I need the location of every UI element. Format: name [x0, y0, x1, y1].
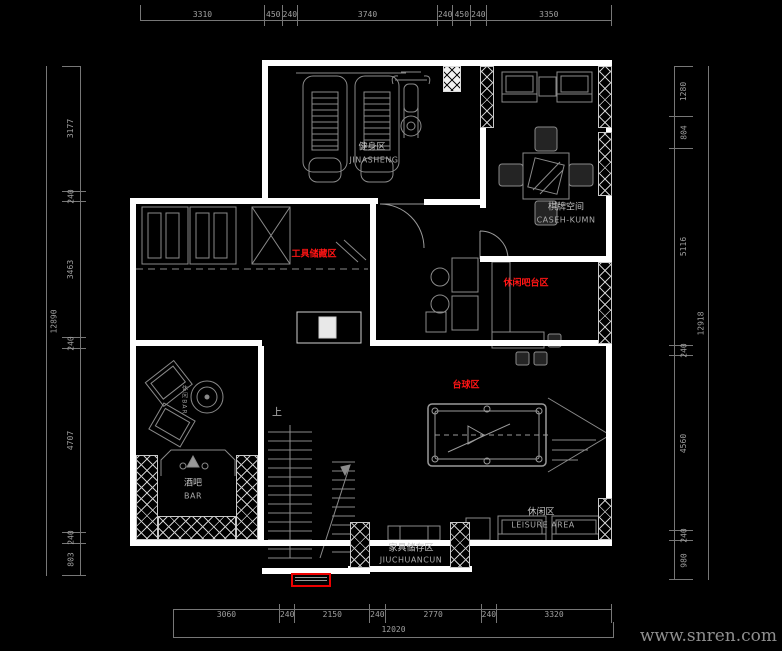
entry-marker [291, 573, 331, 587]
dim-value: 450 [455, 10, 469, 20]
floor-plan-canvas: 3310 450 240 3740 240 450 240 3350 3060 … [0, 0, 782, 651]
dim-value: 4560 [680, 433, 689, 452]
hatch-column [598, 66, 612, 128]
dim-value: 240 [283, 10, 297, 20]
dim-value: 3350 [539, 10, 558, 20]
door-arc [380, 204, 508, 259]
dim-value: 4707 [67, 431, 76, 450]
desk-and-chairs [426, 258, 478, 332]
dim-value: 1280 [680, 82, 689, 101]
dim-value: 240 [482, 610, 496, 620]
hatch-column [598, 262, 612, 344]
hatch-column [598, 498, 612, 540]
dim-value: 803 [66, 552, 75, 566]
room-label-bar-en: BAR [184, 492, 202, 501]
watermark: www.snren.com [640, 626, 777, 646]
bar-cabinet-icon [161, 450, 235, 476]
dim-bottom: 3060 240 2150 240 2770 240 3320 [173, 609, 612, 623]
counter-block [297, 312, 361, 343]
dim-value: 240 [280, 610, 294, 620]
wardrobe-icons [142, 207, 290, 264]
dim-value: 5116 [680, 237, 689, 256]
dim-left: 3177 240 3463 240 4707 240 803 [62, 66, 81, 576]
hatch-column [450, 522, 470, 568]
dim-value: 980 [679, 553, 688, 567]
room-label-storage-en: JIUCHUANCUN [380, 556, 442, 565]
wall-garage-left [262, 60, 268, 204]
dim-value: 3310 [193, 10, 212, 20]
dim-value: 3060 [217, 610, 236, 620]
room-label-chess-en: CASEH-KUMN [537, 216, 596, 225]
dim-value: 450 [266, 10, 280, 20]
hatch-column [236, 455, 258, 540]
room-label-storage-zh: 家具储存区 [388, 541, 433, 554]
dim-value: 3463 [67, 260, 76, 279]
room-label-billiards: 台球区 [452, 378, 479, 391]
room-label-fitness-en: JINASHENG [349, 156, 398, 165]
storage-table-icon [388, 526, 440, 540]
dim-value: 804 [679, 125, 688, 139]
room-label-leisure-en: LEISURE AREA [511, 521, 575, 530]
room-label-fitness-zh: 健身区 [358, 140, 385, 153]
dim-total-value: 12890 [50, 309, 59, 333]
room-label-tool-storage: 工具储藏区 [291, 247, 336, 260]
wall-billiard-top-a [130, 340, 262, 346]
direction-arrow-icon [548, 398, 610, 472]
dim-value: 240 [370, 610, 384, 620]
hatch-column [480, 66, 494, 128]
dim-value: 3177 [67, 119, 76, 138]
hatch-column [350, 522, 370, 568]
room-label-bar-counter: 休闲吧台区 [503, 276, 548, 289]
dim-left-total: 12890 [46, 66, 61, 576]
sofa-icon [502, 72, 592, 102]
dim-top: 3310 450 240 3740 240 450 240 3350 [140, 5, 612, 21]
wall-bottom [130, 540, 612, 546]
staircase-icon [268, 425, 355, 558]
dim-total-value: 12918 [697, 311, 706, 335]
room-label-chess-zh: 棋牌空间 [548, 200, 584, 213]
hatch-column [136, 455, 158, 540]
room-label-bar-zh: 酒吧 [184, 476, 202, 489]
treadmill-icon [296, 73, 354, 182]
dim-value: 240 [438, 10, 452, 20]
dim-total-value: 12020 [381, 625, 405, 634]
wall-mid-horizontal-a [130, 198, 378, 204]
hatch-column [158, 516, 236, 540]
room-label-leisure-zh: 休闲区 [527, 505, 554, 518]
dim-bottom-total: 12020 [173, 622, 614, 638]
stairs-up-label: 上 [272, 404, 282, 419]
wall-top [262, 60, 612, 66]
dim-value: 240 [471, 10, 485, 20]
dim-value: 3320 [544, 610, 563, 620]
wall-mid-horizontal-b [424, 199, 480, 205]
dim-value: 2770 [424, 610, 443, 620]
wall-stairs-left [258, 346, 264, 546]
dim-value: 3740 [358, 10, 377, 20]
hatch-column-white [443, 66, 461, 92]
wall-leftroom-right [370, 198, 376, 346]
wall-chess-bottom [480, 256, 612, 262]
dim-right-total: 12918 [694, 66, 709, 580]
hatch-column [598, 132, 612, 196]
dim-value: 2150 [323, 610, 342, 620]
wall-billiard-top-b [370, 340, 612, 346]
dim-right: 1280 804 5116 240 4560 240 980 [674, 66, 693, 580]
billiard-table-icon [428, 404, 548, 466]
room-label-lounge: 休闲BAR [180, 385, 189, 414]
